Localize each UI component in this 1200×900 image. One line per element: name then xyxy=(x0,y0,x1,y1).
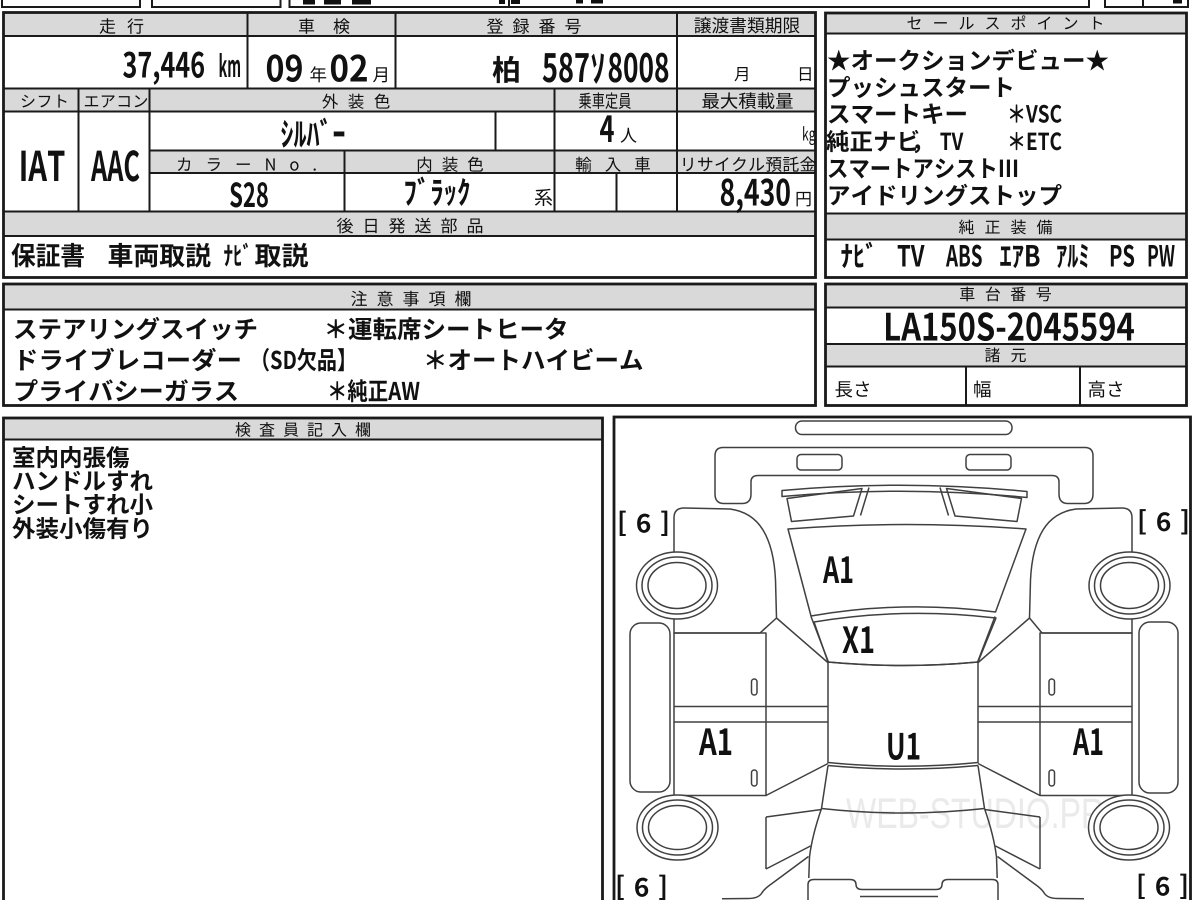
svg-text:WEB-STUDIO.PRO: WEB-STUDIO.PRO xyxy=(846,790,1129,838)
